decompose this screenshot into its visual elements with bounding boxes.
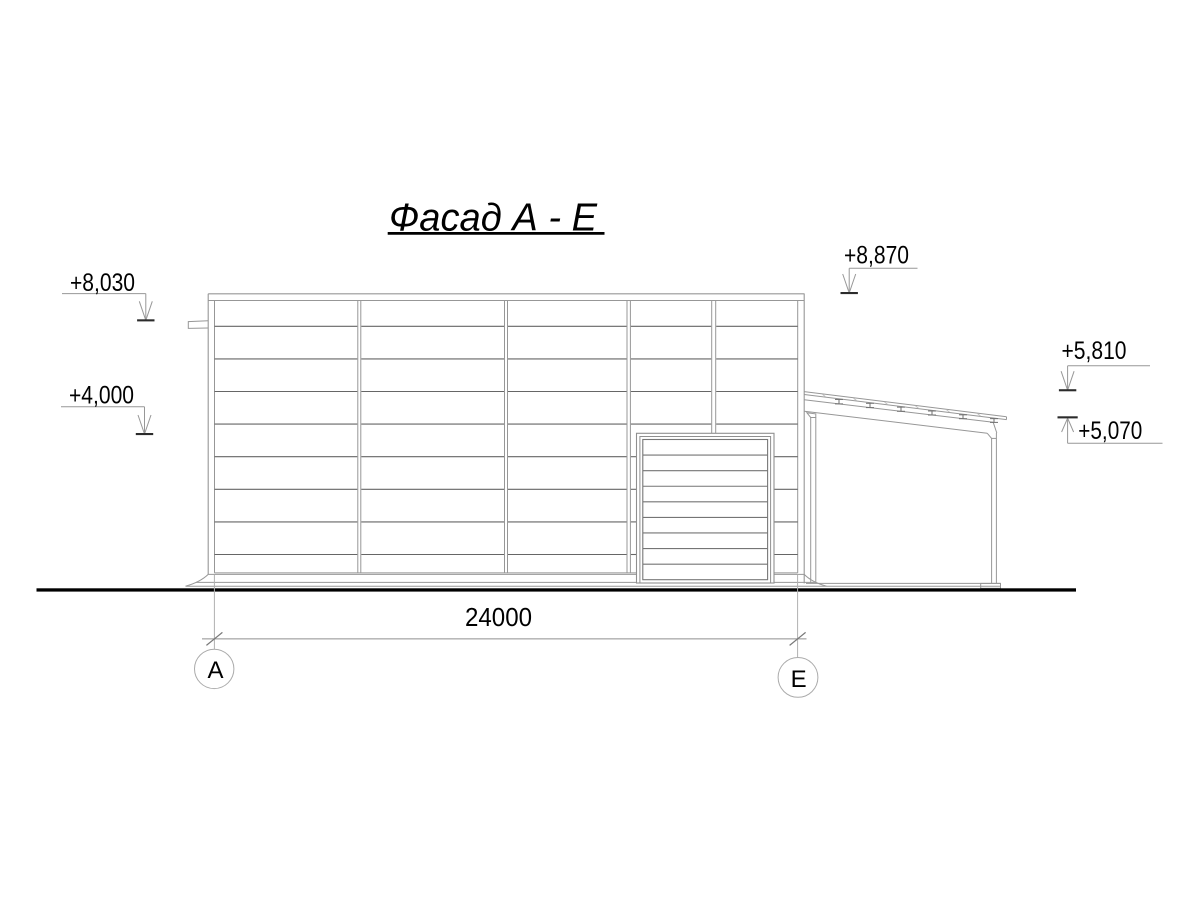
svg-text:+8,030: +8,030 (70, 269, 135, 297)
svg-text:А: А (207, 657, 223, 684)
svg-text:24000: 24000 (465, 602, 532, 632)
svg-text:+8,870: +8,870 (844, 241, 909, 269)
svg-text:+5,070: +5,070 (1078, 417, 1142, 445)
svg-text:+5,810: +5,810 (1062, 337, 1127, 365)
svg-text:Е: Е (791, 666, 807, 693)
svg-text:+4,000: +4,000 (69, 381, 134, 409)
